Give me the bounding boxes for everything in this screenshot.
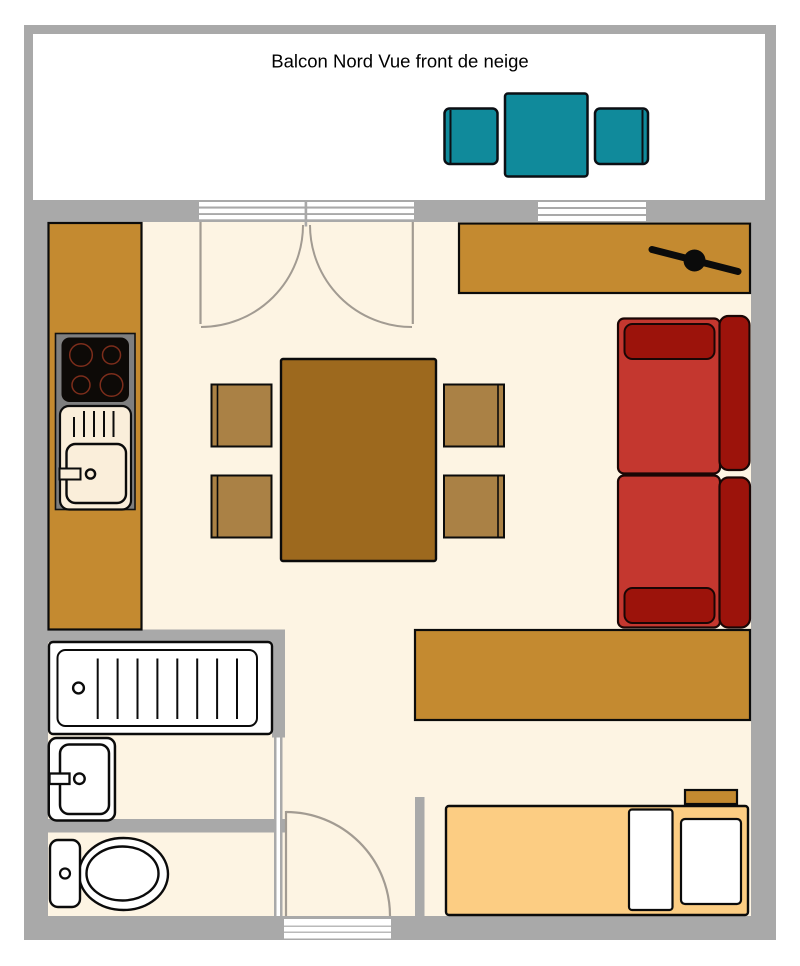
- svg-text:Balcon Nord Vue front de neige: Balcon Nord Vue front de neige: [271, 51, 528, 72]
